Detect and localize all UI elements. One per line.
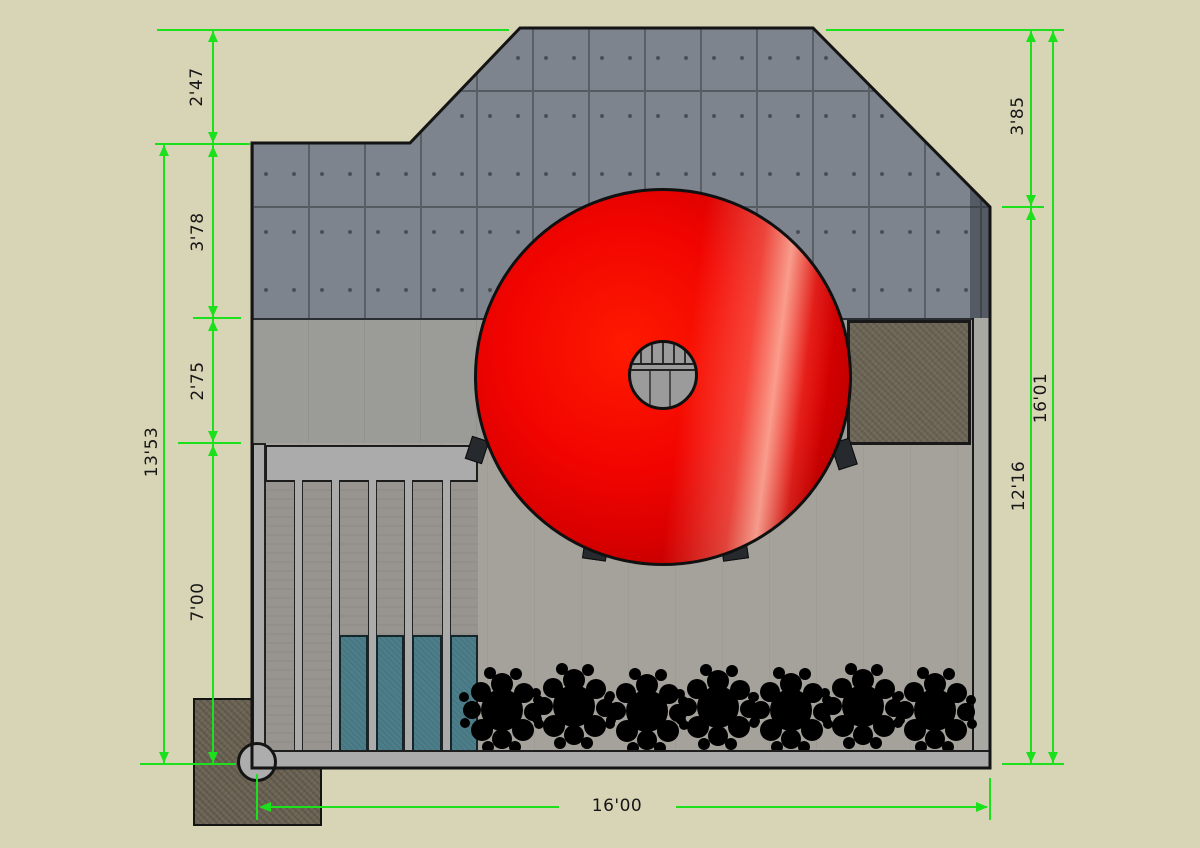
teal-infill-panel <box>450 635 478 750</box>
recessed-brown-panel <box>847 320 971 445</box>
red-torus-sculpture <box>474 188 852 566</box>
base-plinth <box>252 750 990 768</box>
hole-railing-bars <box>631 343 695 365</box>
hole-rail-line <box>631 369 695 371</box>
dimension-arrow <box>1048 31 1058 42</box>
dimension-arrow <box>208 320 218 331</box>
torus-hole-opening <box>628 340 698 410</box>
teal-infill-panel <box>412 635 442 750</box>
dim-label-left-overall: 13'53 <box>141 417 163 487</box>
dimension-line-bottom-a <box>261 806 559 808</box>
tick-base-left <box>140 763 236 765</box>
dimension-line-left-outer <box>163 143 165 765</box>
dimension-arrow <box>1026 195 1036 206</box>
teal-infill-panel <box>376 635 404 750</box>
dim-label-upper-band: 3'78 <box>187 197 209 267</box>
dim-label-roof-drop: 3'85 <box>1007 81 1029 151</box>
hole-panel-joint <box>669 371 671 410</box>
dimension-arrow <box>208 752 218 763</box>
right-corner-shading <box>970 28 990 318</box>
dimension-arrow <box>208 431 218 442</box>
extension-line-upper <box>155 143 250 145</box>
dimension-arrow <box>159 145 169 156</box>
dimension-arrow <box>208 146 218 157</box>
tick-roof-drop <box>1002 206 1044 208</box>
dimension-arrow <box>208 132 218 143</box>
teal-infill-panel <box>339 635 368 750</box>
dim-label-right-lower: 12'16 <box>1008 451 1030 521</box>
dimension-arrow <box>1048 752 1058 763</box>
dim-label-middle-band: 2'75 <box>187 346 209 416</box>
dimension-arrow <box>208 31 218 42</box>
dimension-line-bottom-b <box>676 806 987 808</box>
tick-mid-lower <box>178 442 241 444</box>
dimension-arrow <box>1026 31 1036 42</box>
dimension-arrow <box>259 802 271 812</box>
extension-line-bottom-right <box>989 778 991 820</box>
dimension-arrow <box>976 802 988 812</box>
dimension-arrow <box>1026 209 1036 220</box>
dimension-arrow <box>208 306 218 317</box>
dimension-line-right-outer <box>1052 29 1054 765</box>
tick-base-right <box>1002 763 1064 765</box>
dimension-arrow <box>1026 752 1036 763</box>
hole-rail-line <box>631 363 695 365</box>
dimension-arrow <box>208 445 218 456</box>
hole-panel-joint <box>649 371 651 410</box>
dim-label-overall-width: 16'00 <box>562 795 672 817</box>
dimension-arrow <box>159 752 169 763</box>
colonnade-beam <box>265 445 478 482</box>
extension-line-bottom-left <box>256 774 258 820</box>
dim-label-right-overall: 16'01 <box>1030 363 1052 433</box>
elevation-drawing-canvas: { "drawing": { "type": "building-elevati… <box>0 0 1200 848</box>
right-wall-return <box>972 318 990 750</box>
dim-label-roof-peak-offset: 2'47 <box>186 52 208 122</box>
tick-mid-upper <box>193 317 241 319</box>
left-end-column <box>252 443 266 750</box>
dim-label-lower-band: 7'00 <box>187 567 209 637</box>
colonnade-post <box>294 480 303 750</box>
